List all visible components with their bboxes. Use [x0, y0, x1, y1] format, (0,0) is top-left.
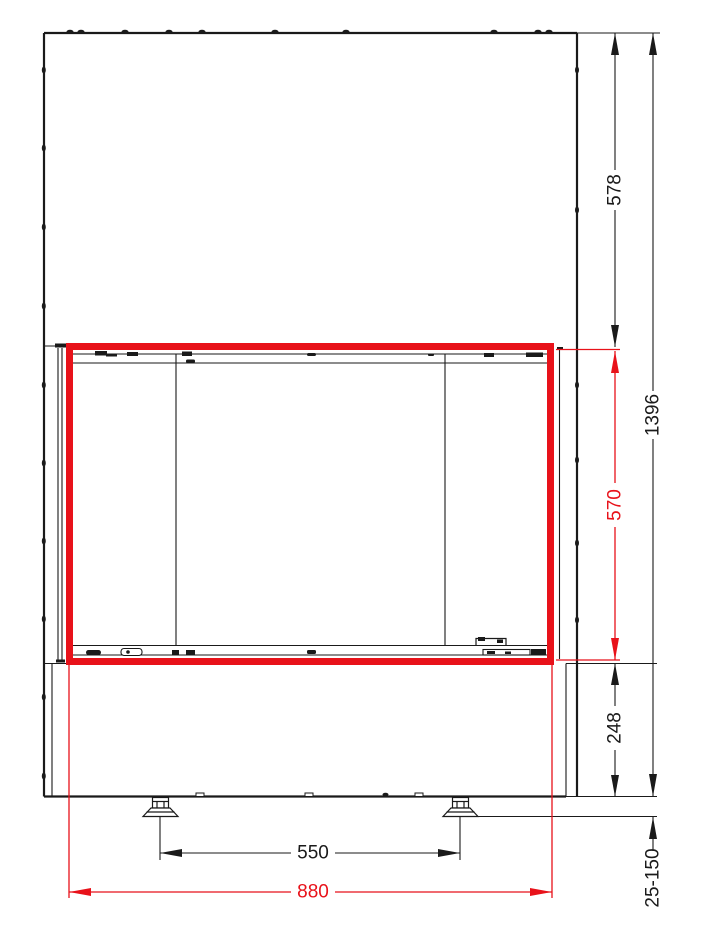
dim-label-1396: 1396 — [643, 394, 664, 436]
technical-drawing-page: 578 1396 570 248 25-150 550 — [0, 0, 709, 932]
dimension-578: 578 — [605, 33, 626, 347]
dim-label-578: 578 — [605, 174, 626, 206]
foot-left — [143, 798, 178, 817]
dimension-880: 880 — [69, 882, 552, 903]
dim-label-25-150: 25-150 — [643, 848, 664, 907]
foot-right — [443, 798, 478, 817]
dim-label-550: 550 — [297, 843, 329, 864]
dim-label-570: 570 — [605, 489, 626, 521]
dimension-550: 550 — [160, 843, 460, 864]
dim-label-880: 880 — [297, 882, 329, 903]
dim-label-248: 248 — [605, 712, 626, 744]
technical-drawing: 578 1396 570 248 25-150 550 — [0, 0, 709, 932]
glass-frame-highlight — [70, 347, 551, 662]
extension-lines-black — [160, 33, 660, 860]
dimension-248: 248 — [605, 664, 626, 797]
latch-detail — [476, 637, 546, 656]
dimension-1396: 1396 — [643, 33, 664, 797]
dimension-570: 570 — [605, 351, 626, 660]
dimension-25-150: 25-150 — [643, 817, 664, 908]
body-outline — [44, 33, 577, 797]
inner-structure — [44, 346, 566, 797]
